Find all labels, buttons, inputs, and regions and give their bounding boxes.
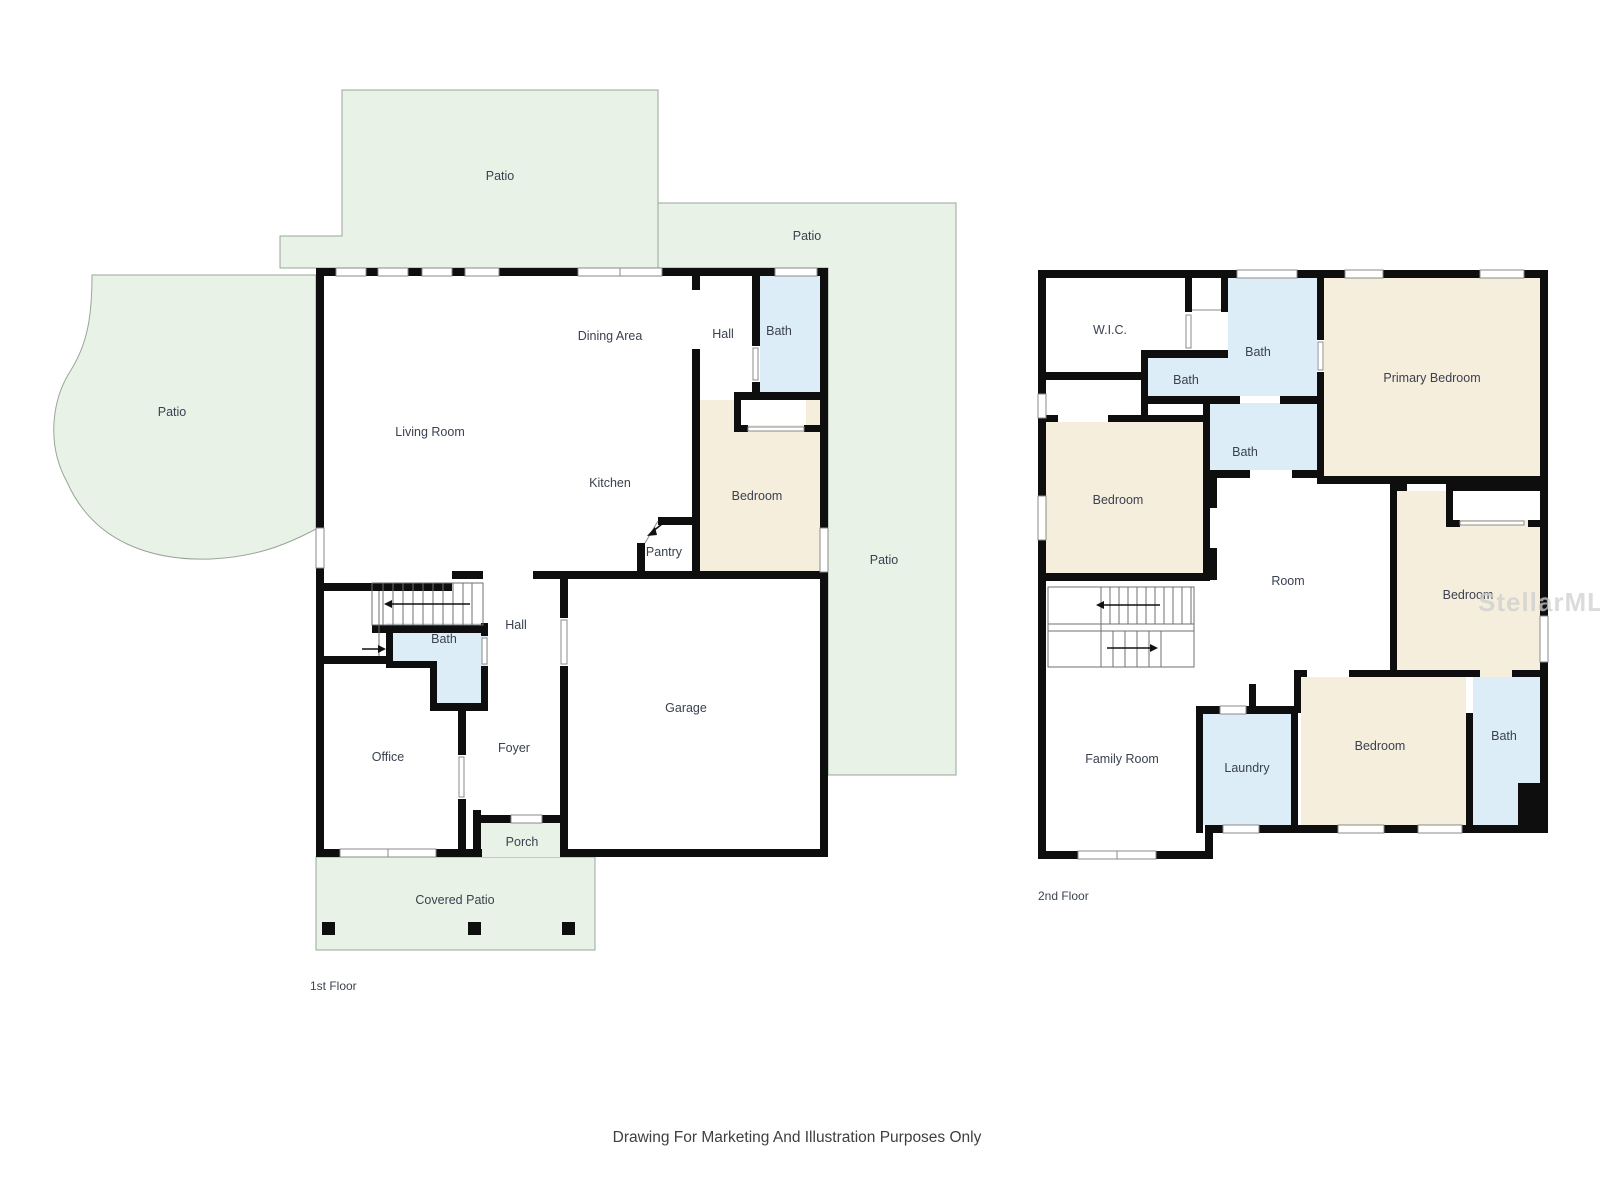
label-foyer: Foyer [498, 741, 530, 755]
label-room: Room [1271, 574, 1304, 588]
label-kitchen: Kitchen [589, 476, 631, 490]
label-bath-top2: Bath [1245, 345, 1271, 359]
label-bath-small: Bath [1173, 373, 1199, 387]
label-garage: Garage [665, 701, 707, 715]
label-bath-mid: Bath [1232, 445, 1258, 459]
label-pantry: Pantry [646, 545, 683, 559]
label-primary-bedroom: Primary Bedroom [1383, 371, 1480, 385]
label-bedroom-bottom: Bedroom [1355, 739, 1406, 753]
label-hall-top: Hall [712, 327, 734, 341]
label-hall: Hall [505, 618, 527, 632]
label-bath: Bath [431, 632, 457, 646]
label-bedroom: Bedroom [732, 489, 783, 503]
floor1-bedroom-closet [741, 400, 806, 425]
patio-post [322, 922, 335, 935]
label-patio-top-right: Patio [793, 229, 822, 243]
label-porch: Porch [506, 835, 539, 849]
label-patio-right: Patio [870, 553, 899, 567]
label-living-room: Living Room [395, 425, 464, 439]
floor2-bedroom-right-closet [1453, 491, 1540, 520]
label-patio-left: Patio [158, 405, 187, 419]
floor1-title: 1st Floor [310, 979, 357, 993]
label-covered-patio: Covered Patio [415, 893, 494, 907]
floor2-bath-top-room [1228, 277, 1317, 396]
patio-post [562, 922, 575, 935]
floor2-bath-mid-room [1210, 403, 1317, 470]
label-patio-top: Patio [486, 169, 515, 183]
floor2-plan: W.I.C. Bath Bath Bath Primary Bedroom Be… [1038, 270, 1548, 903]
floor2-title: 2nd Floor [1038, 889, 1089, 903]
label-family-room: Family Room [1085, 752, 1159, 766]
floor1-patio-top [280, 90, 658, 268]
floor1-plan: Patio Patio Patio Patio Living Room Dini… [54, 90, 956, 993]
floorplan-drawing: Patio Patio Patio Patio Living Room Dini… [0, 0, 1600, 1200]
label-bath-top: Bath [766, 324, 792, 338]
patio-post [468, 922, 481, 935]
disclaimer-text: Drawing For Marketing And Illustration P… [613, 1129, 982, 1146]
label-bedroom-left: Bedroom [1093, 493, 1144, 507]
floorplan-page: Patio Patio Patio Patio Living Room Dini… [0, 0, 1600, 1200]
label-office: Office [372, 750, 404, 764]
label-dining-area: Dining Area [578, 329, 643, 343]
stellar-mls-watermark: StellarMLS [1478, 587, 1600, 617]
label-wic: W.I.C. [1093, 323, 1127, 337]
label-laundry: Laundry [1224, 761, 1270, 775]
label-bath-bottom: Bath [1491, 729, 1517, 743]
